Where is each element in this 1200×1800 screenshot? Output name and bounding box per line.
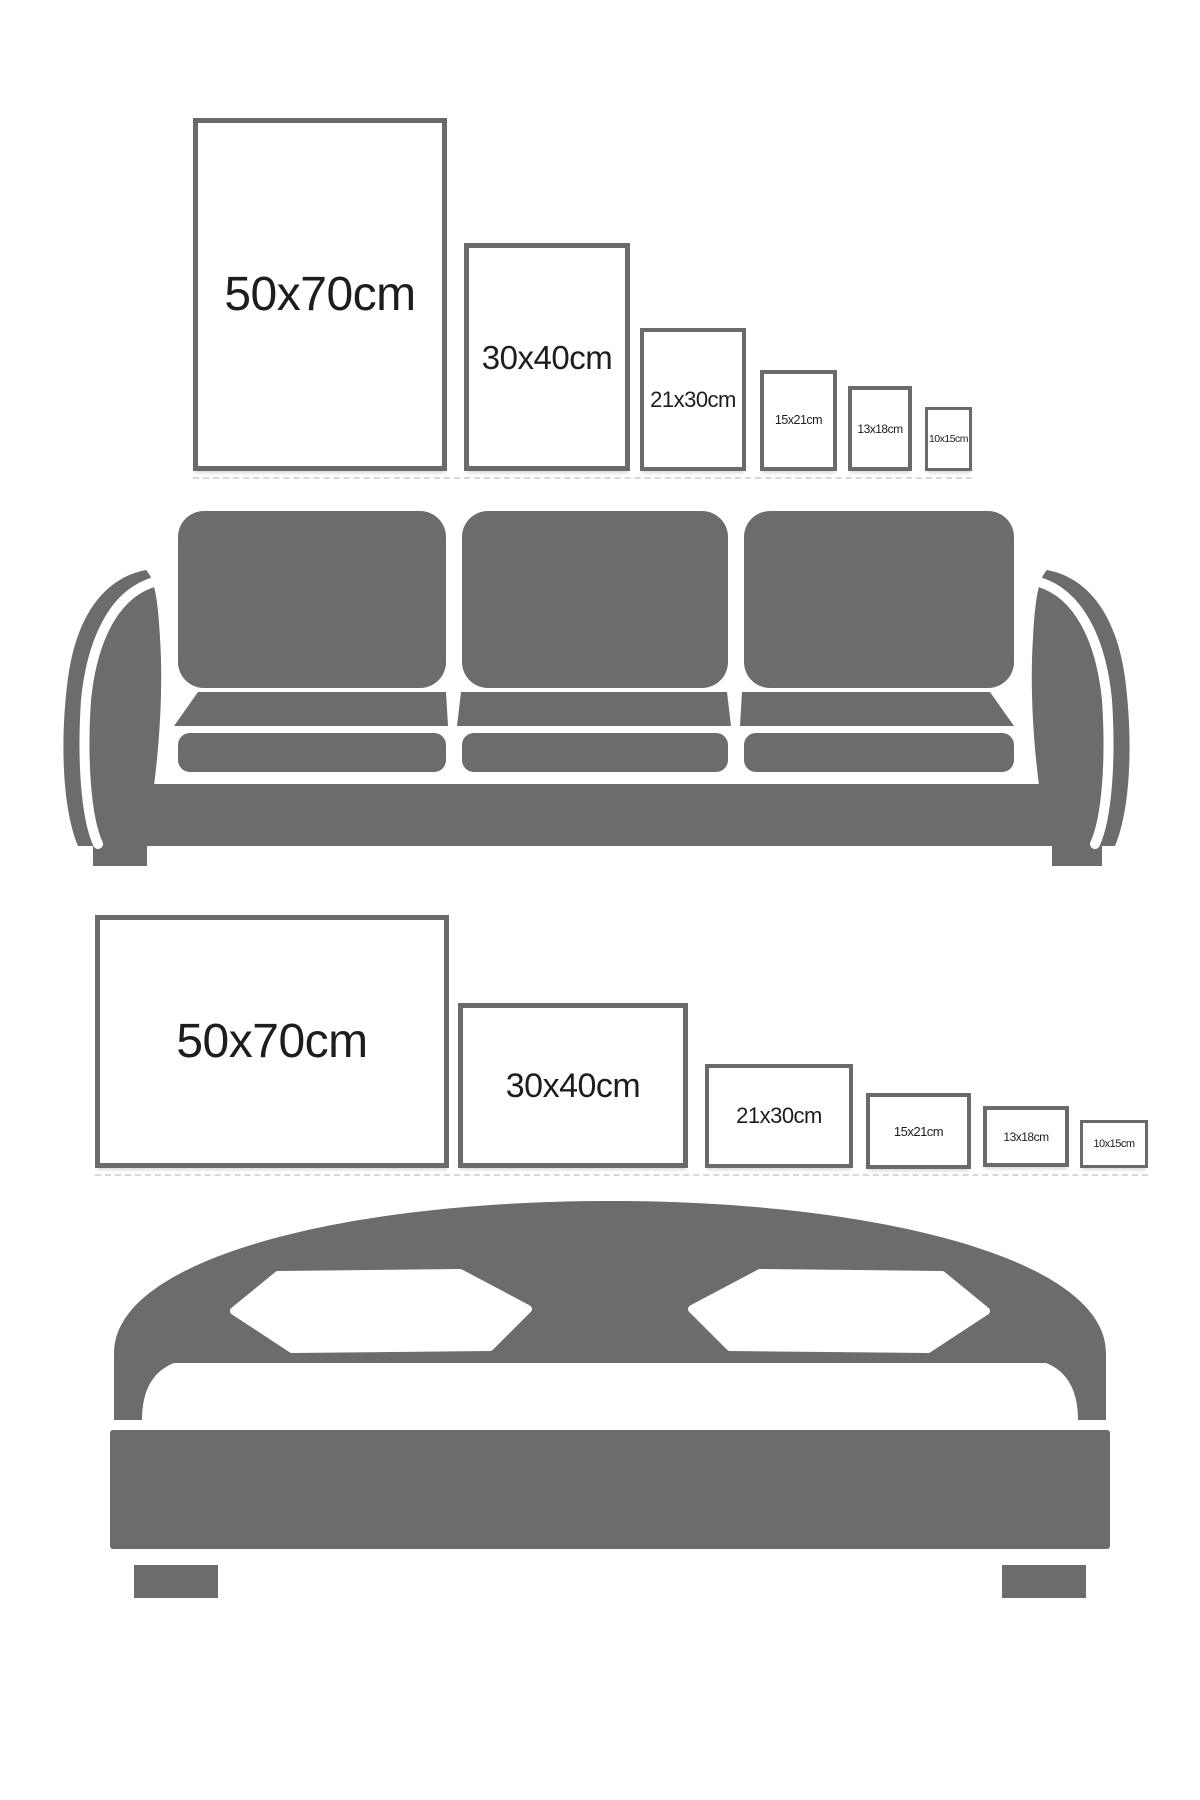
size-frame-10x15cm-portrait: 10x15cm	[925, 407, 972, 471]
frame-size-label: 50x70cm	[224, 271, 415, 319]
size-frame-15x21cm-portrait: 15x21cm	[760, 370, 837, 471]
frame-size-label: 21x30cm	[650, 389, 736, 411]
sofa-seat-cushion	[462, 733, 728, 772]
sofa-seat-deck	[740, 692, 1014, 726]
size-frame-50x70cm-portrait: 50x70cm	[193, 118, 447, 471]
sofa-seat-deck	[457, 692, 731, 726]
poster-size-guide: 50x70cm30x40cm21x30cm15x21cm13x18cm10x15…	[0, 0, 1200, 1800]
size-frame-13x18cm-landscape: 13x18cm	[983, 1106, 1069, 1167]
frame-size-label: 10x15cm	[1093, 1139, 1134, 1150]
size-frame-10x15cm-landscape: 10x15cm	[1080, 1120, 1148, 1168]
bed-foot	[134, 1565, 218, 1598]
size-frame-30x40cm-landscape: 30x40cm	[458, 1003, 688, 1168]
frame-size-label: 10x15cm	[929, 434, 968, 445]
frame-size-label: 30x40cm	[482, 341, 612, 374]
sofa-seat-cushion	[178, 733, 446, 772]
sofa-illustration	[48, 478, 1145, 868]
size-frame-21x30cm-portrait: 21x30cm	[640, 328, 746, 471]
bed-pillow-left	[234, 1273, 528, 1349]
bed-pillow-right	[692, 1273, 986, 1349]
size-frame-30x40cm-portrait: 30x40cm	[464, 243, 630, 471]
size-frame-13x18cm-portrait: 13x18cm	[848, 386, 912, 471]
frame-size-label: 21x30cm	[736, 1105, 822, 1127]
frame-row-shadow	[95, 1174, 1148, 1176]
sofa-seat-deck	[174, 692, 448, 726]
sofa-back-cushion	[462, 511, 728, 688]
size-frame-50x70cm-landscape: 50x70cm	[95, 915, 449, 1168]
bed-base	[110, 1430, 1110, 1549]
sofa-back-cushion	[178, 511, 446, 688]
frame-size-label: 13x18cm	[857, 423, 902, 435]
bed-illustration	[105, 1193, 1115, 1599]
size-frame-15x21cm-landscape: 15x21cm	[866, 1093, 971, 1169]
bed-foot	[1002, 1565, 1086, 1598]
frame-size-label: 13x18cm	[1003, 1131, 1048, 1143]
sofa-seat-cushion	[744, 733, 1014, 772]
sofa-back-cushion	[744, 511, 1014, 688]
sofa-base-rail	[74, 784, 1120, 846]
size-frame-21x30cm-landscape: 21x30cm	[705, 1064, 853, 1168]
frame-size-label: 30x40cm	[506, 1069, 640, 1103]
frame-size-label: 15x21cm	[775, 414, 822, 427]
frame-size-label: 15x21cm	[894, 1125, 943, 1138]
frame-size-label: 50x70cm	[176, 1018, 367, 1066]
